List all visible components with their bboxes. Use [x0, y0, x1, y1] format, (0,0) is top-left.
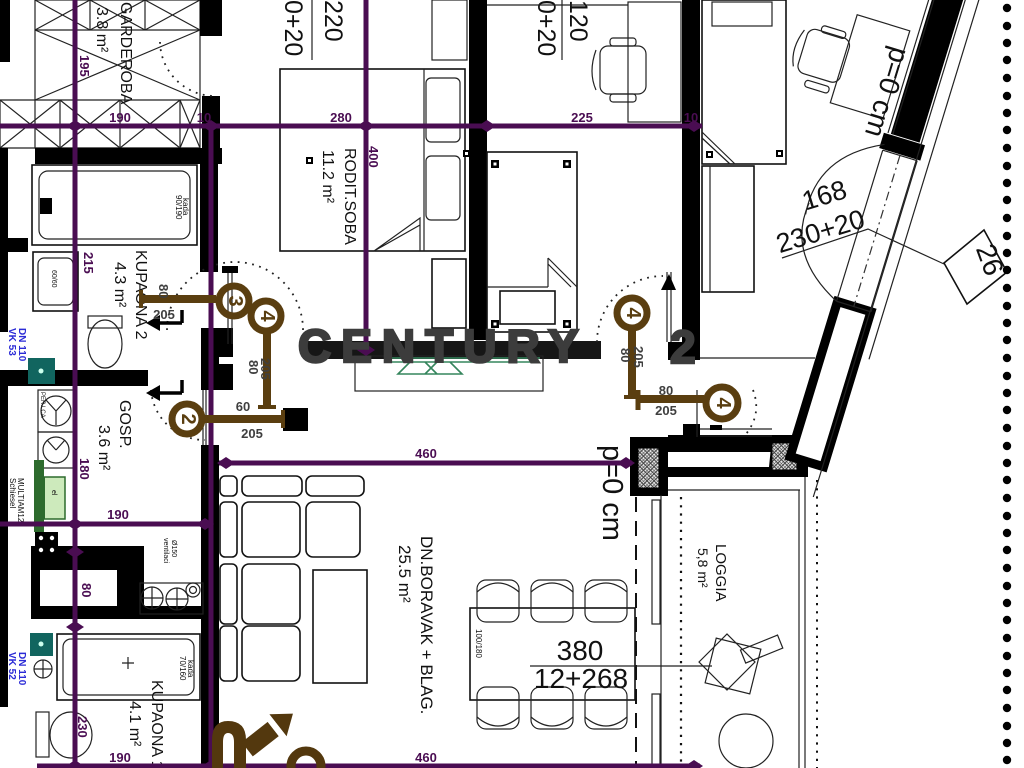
svg-text:230: 230: [75, 716, 90, 738]
svg-text:70/160: 70/160: [178, 656, 187, 681]
svg-text:4.3 m²: 4.3 m²: [111, 262, 128, 308]
svg-text:kada: kada: [181, 198, 190, 216]
svg-text:el: el: [50, 490, 57, 496]
svg-text:11.2 m²: 11.2 m²: [319, 150, 336, 204]
svg-text:80: 80: [79, 583, 94, 597]
svg-text:80: 80: [659, 383, 673, 398]
svg-text:80: 80: [156, 284, 171, 298]
svg-text:195: 195: [77, 55, 92, 77]
svg-text:CENTURY: CENTURY: [298, 320, 589, 372]
svg-text:180: 180: [77, 458, 92, 480]
svg-text:0+20: 0+20: [279, 0, 307, 56]
svg-text:3.8 m²: 3.8 m²: [93, 7, 110, 53]
svg-text:60: 60: [236, 399, 250, 414]
svg-text:Schiesel: Schiesel: [8, 478, 17, 508]
svg-text:3.6 m²: 3.6 m²: [95, 425, 112, 471]
svg-text:60/60: 60/60: [50, 270, 57, 288]
svg-text:205: 205: [655, 403, 677, 418]
svg-text:GOSP.: GOSP.: [116, 400, 133, 449]
svg-text:GARDEROBA: GARDEROBA: [117, 2, 134, 105]
svg-text:25.5 m²: 25.5 m²: [395, 545, 414, 603]
svg-text:460: 460: [415, 446, 437, 461]
svg-text:DN 110: DN 110: [16, 328, 27, 362]
svg-text:4: 4: [712, 397, 734, 409]
svg-text:205: 205: [241, 426, 263, 441]
svg-text:Ø150: Ø150: [170, 540, 177, 557]
svg-text:4: 4: [622, 307, 644, 319]
svg-text:VK 53: VK 53: [6, 328, 17, 356]
svg-text:205: 205: [631, 346, 646, 368]
svg-text:RODIT.SOBA: RODIT.SOBA: [341, 148, 358, 245]
svg-text:kada: kada: [186, 660, 195, 678]
svg-text:80: 80: [618, 348, 633, 362]
svg-text:215: 215: [81, 252, 96, 274]
svg-text:460: 460: [415, 750, 437, 765]
svg-text:2: 2: [177, 413, 199, 424]
svg-text:VK 52: VK 52: [6, 652, 17, 680]
svg-text:10: 10: [684, 110, 698, 125]
svg-text:205: 205: [153, 307, 175, 322]
svg-text:KUPAONA 1: KUPAONA 1: [148, 680, 165, 768]
svg-text:MULTIAM12: MULTIAM12: [16, 478, 25, 523]
svg-text:PER.LCA: PER.LCA: [39, 392, 45, 418]
svg-text:4: 4: [256, 310, 278, 322]
svg-text:3: 3: [224, 295, 246, 306]
svg-text:DN 110: DN 110: [16, 652, 27, 686]
svg-text:205: 205: [258, 358, 273, 380]
svg-text:220: 220: [319, 0, 347, 42]
svg-text:2: 2: [670, 321, 696, 373]
svg-text:LOGGIA: LOGGIA: [712, 544, 729, 602]
svg-text:5,8 m²: 5,8 m²: [695, 548, 711, 588]
svg-text:4.1 m²: 4.1 m²: [126, 701, 143, 747]
svg-text:190: 190: [109, 750, 131, 765]
svg-text:100/180: 100/180: [474, 629, 483, 658]
svg-text:10: 10: [197, 110, 211, 125]
svg-text:225: 225: [571, 110, 593, 125]
svg-text:190: 190: [109, 110, 131, 125]
svg-text:0+20: 0+20: [532, 0, 560, 56]
svg-text:280: 280: [330, 110, 352, 125]
svg-text:400: 400: [366, 146, 381, 168]
svg-text:12+268: 12+268: [534, 663, 628, 694]
svg-text:ventilaci: ventilaci: [162, 538, 169, 564]
svg-text:120: 120: [564, 0, 592, 42]
svg-text:190: 190: [107, 507, 129, 522]
svg-text:380: 380: [557, 635, 604, 666]
svg-text:DN.BORAVAK + BLAG.: DN.BORAVAK + BLAG.: [417, 536, 436, 714]
